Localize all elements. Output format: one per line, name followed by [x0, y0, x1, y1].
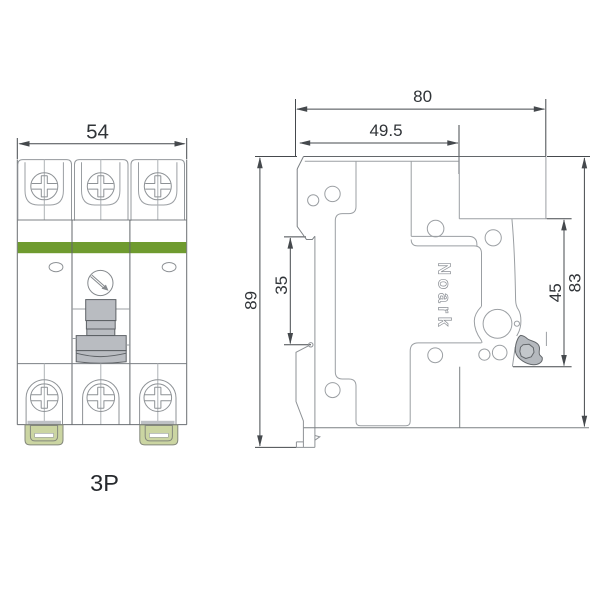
svg-text:3P: 3P: [90, 470, 119, 496]
svg-text:80: 80: [413, 87, 432, 106]
svg-text:49.5: 49.5: [369, 121, 402, 140]
svg-text:45: 45: [546, 283, 565, 302]
svg-text:83: 83: [566, 273, 585, 292]
svg-text:Noark: Noark: [434, 262, 454, 330]
svg-text:89: 89: [242, 291, 261, 310]
svg-text:54: 54: [86, 121, 109, 144]
svg-text:35: 35: [272, 276, 291, 295]
